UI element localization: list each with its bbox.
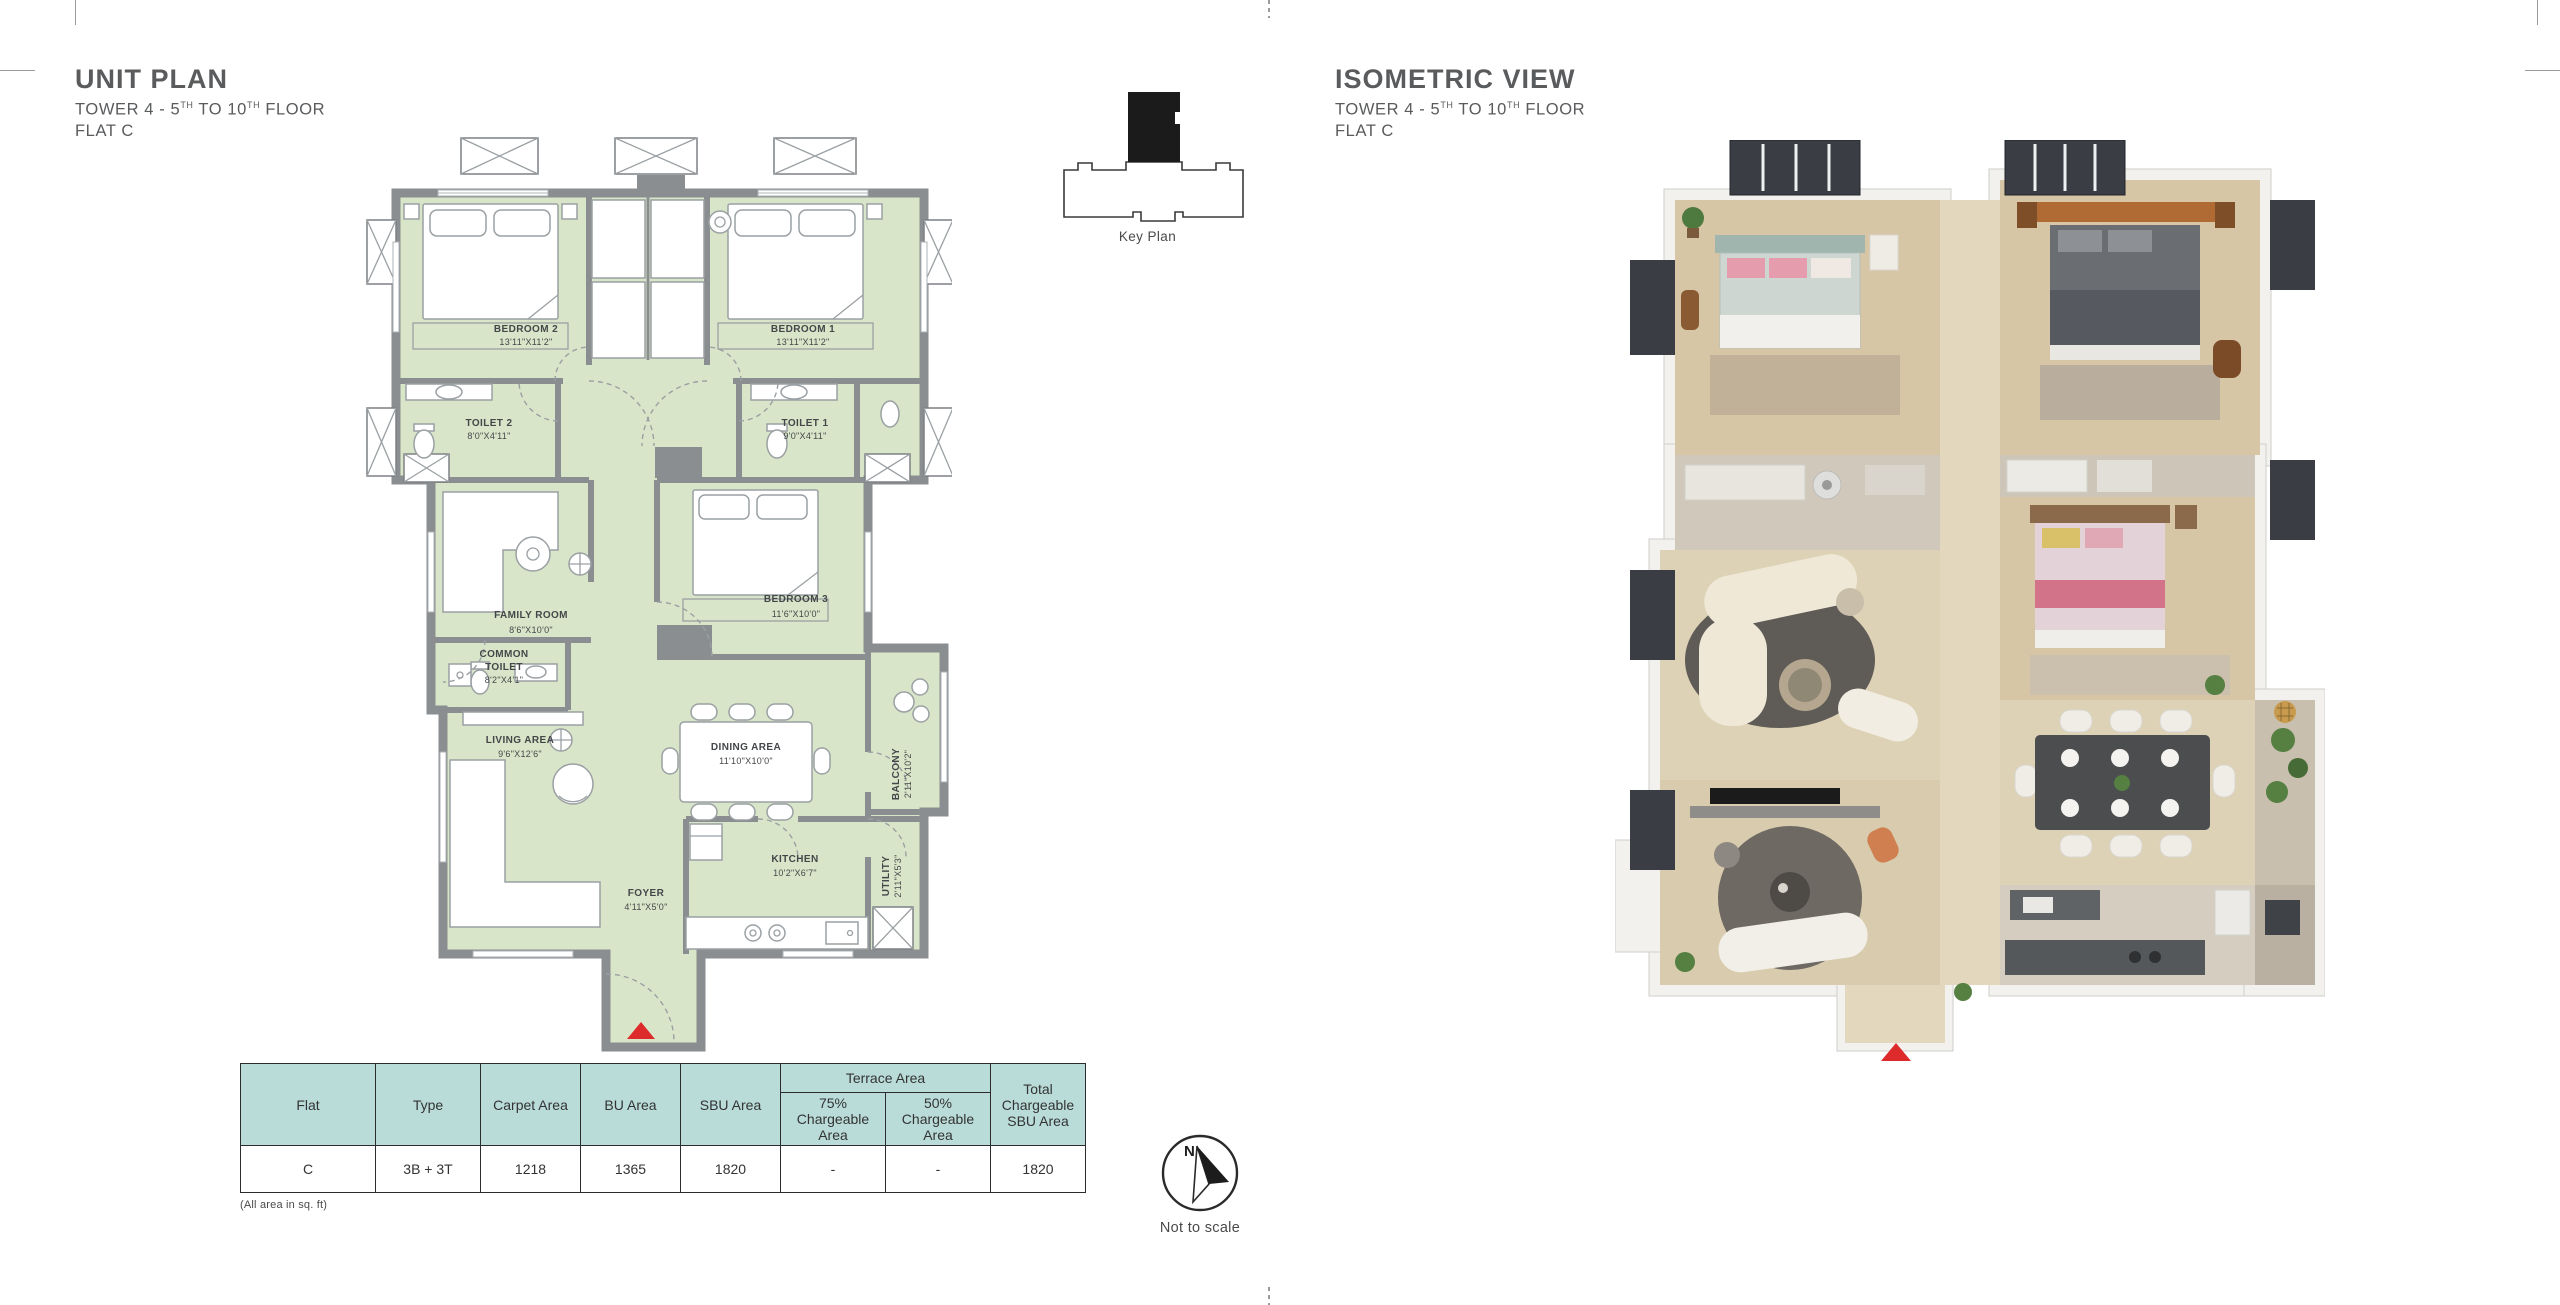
key-plan-building-outline [1064, 162, 1243, 221]
room-dim: 13'11"X11'2" [776, 337, 829, 347]
col-header-terrace-50: 50% Chargeable Area [886, 1093, 991, 1146]
col-header-terrace: Terrace Area [781, 1064, 991, 1093]
col-header-total: Total Chargeable SBU Area [991, 1064, 1086, 1146]
col-header-flat: Flat [241, 1064, 376, 1146]
room-dim: 9'0"X4'11" [783, 431, 826, 441]
compass-n-label: N [1184, 1143, 1195, 1160]
room-dim: 10'2"X6'7" [773, 868, 817, 878]
key-plan: Key Plan [1040, 70, 1255, 244]
north-compass-icon: N [1157, 1128, 1243, 1214]
col-header-sbu: SBU Area [681, 1064, 781, 1146]
room-dim: 2'11"X10'2" [903, 750, 913, 799]
key-plan-label: Key Plan [1040, 229, 1255, 244]
key-plan-highlight-tower [1128, 92, 1180, 162]
cell-total: 1820 [991, 1146, 1086, 1193]
room-label: DINING AREA [711, 742, 781, 753]
flat-line: FLAT C [1335, 121, 1585, 142]
room-dim: 11'6"X10'0" [772, 609, 821, 619]
unit-floor-plan: BEDROOM 2 13'11"X11'2" BEDROOM 1 13'11"X… [228, 112, 952, 1057]
room-label: TOILET [485, 662, 523, 673]
crop-mark [1268, 1287, 1270, 1305]
crop-mark [2537, 0, 2538, 25]
cell-carpet: 1218 [481, 1146, 581, 1193]
brochure-page: UNIT PLAN TOWER 4 - 5TH TO 10TH FLOOR FL… [0, 0, 2560, 1305]
area-unit-note: (All area in sq. ft) [240, 1199, 1086, 1211]
page-title: UNIT PLAN [75, 64, 325, 95]
isometric-view [1615, 140, 2325, 1075]
compass: N Not to scale [1155, 1128, 1245, 1236]
room-label: FOYER [628, 888, 665, 899]
room-label: BEDROOM 1 [771, 324, 835, 335]
room-dim: 8'2"X4'1" [485, 675, 524, 685]
col-header-carpet: Carpet Area [481, 1064, 581, 1146]
room-label: LIVING AREA [486, 735, 554, 746]
area-table-section: Flat Type Carpet Area BU Area SBU Area T… [240, 1063, 1086, 1211]
col-header-terrace-75: 75% Chargeable Area [781, 1093, 886, 1146]
crop-mark [0, 70, 35, 71]
cell-type: 3B + 3T [376, 1146, 481, 1193]
room-dim: 2'11"X5'3" [893, 854, 903, 897]
table-row: C 3B + 3T 1218 1365 1820 - - 1820 [241, 1146, 1086, 1193]
room-label: COMMON [479, 649, 528, 660]
room-label: KITCHEN [771, 854, 818, 865]
room-label: TOILET 1 [782, 418, 829, 429]
area-table: Flat Type Carpet Area BU Area SBU Area T… [240, 1063, 1086, 1193]
room-label: BALCONY [891, 748, 902, 800]
crop-mark [2525, 70, 2560, 71]
room-dim: 13'11"X11'2" [499, 337, 552, 347]
isometric-title-block: ISOMETRIC VIEW TOWER 4 - 5TH TO 10TH FLO… [1335, 64, 1585, 142]
room-dim: 8'0"X4'11" [467, 431, 510, 441]
room-label: UTILITY [881, 856, 892, 897]
cell-terrace-50: - [886, 1146, 991, 1193]
not-to-scale-label: Not to scale [1155, 1220, 1245, 1236]
page-title: ISOMETRIC VIEW [1335, 64, 1585, 95]
cell-bu: 1365 [581, 1146, 681, 1193]
room-label: FAMILY ROOM [494, 610, 568, 621]
cell-terrace-75: - [781, 1146, 886, 1193]
cell-sbu: 1820 [681, 1146, 781, 1193]
iso-plant [1954, 983, 1972, 1001]
tower-floor-line: TOWER 4 - 5TH TO 10TH FLOOR [1335, 95, 1585, 121]
room-label: TOILET 2 [466, 418, 513, 429]
crop-mark [1268, 0, 1270, 18]
room-label: BEDROOM 2 [494, 324, 558, 335]
room-label: BEDROOM 3 [764, 594, 828, 605]
cell-flat: C [241, 1146, 376, 1193]
col-header-bu: BU Area [581, 1064, 681, 1146]
room-dim: 4'11"X5'0" [624, 902, 667, 912]
room-dim: 11'10"X10'0" [719, 756, 773, 766]
crop-mark [75, 0, 76, 25]
room-dim: 9'6"X12'6" [498, 749, 542, 759]
key-plan-diagram [1040, 70, 1255, 225]
col-header-type: Type [376, 1064, 481, 1146]
room-dim: 8'6"X10'0" [509, 625, 553, 635]
